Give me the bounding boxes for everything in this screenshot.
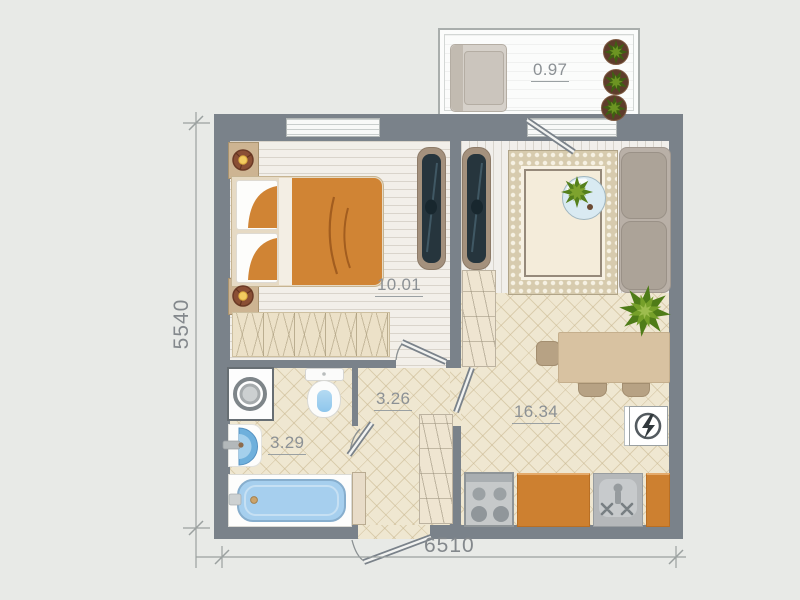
dining-chair-bottom-2 (622, 383, 650, 397)
floor-plan-canvas: 0.97 10.01 3.26 3.29 16.34 6510 5540 (0, 0, 800, 600)
wall-right (669, 114, 683, 539)
bedroom-wardrobe-mirror (422, 154, 441, 263)
dining-chair-bottom-1 (578, 383, 607, 397)
entrance-door-icon (352, 537, 431, 562)
hallway-area-label: 3.26 (374, 390, 412, 411)
wall-bedroom-living-divider (450, 141, 461, 366)
armchair-back (451, 45, 463, 111)
living-wardrobe-mirror (467, 154, 486, 263)
kitchen-counter-2 (646, 473, 670, 527)
bathroom-door-panel (352, 472, 366, 525)
sofa-cushion-1 (621, 152, 667, 219)
bed-sheet-fold (279, 178, 293, 285)
round-table-icon (562, 176, 606, 220)
wall-bathroom-hallway (352, 368, 358, 426)
nightstand-top (228, 142, 259, 179)
kitchen-cabinet-icon (462, 270, 496, 367)
entrance-threshold (358, 525, 430, 539)
bed-pillow-2 (236, 233, 278, 283)
bed-pillow-1 (236, 180, 278, 230)
bedroom-rug (232, 312, 390, 357)
washing-machine-icon (227, 367, 274, 421)
wall-bedroom-bottom-stub (446, 360, 461, 368)
balcony-area-label: 0.97 (531, 61, 569, 82)
balcony-armchair-icon (450, 44, 507, 112)
bathroom-area-label: 3.29 (268, 434, 306, 455)
hallway-wardrobe-icon (419, 414, 453, 524)
stove-icon (464, 472, 514, 527)
width-dimension-label: 6510 (424, 534, 475, 557)
toilet-water (317, 390, 332, 412)
bedroom-window (286, 118, 380, 137)
bedroom-area-label: 10.01 (375, 276, 423, 297)
electric-panel-icon (629, 406, 668, 446)
living-kitchen-area-label: 16.34 (512, 403, 560, 424)
sofa-cushion-2 (621, 221, 667, 290)
dining-table-icon (558, 332, 670, 383)
height-dimension-label: 5540 (170, 286, 196, 362)
balcony-door-window (527, 118, 617, 137)
stove-back-panel (466, 474, 512, 482)
kitchen-counter-1 (517, 473, 590, 527)
bathtub-inner-rim (244, 485, 339, 516)
bathroom-sink-counter (228, 424, 262, 467)
dining-chair-left (536, 341, 560, 366)
armchair-cushion (464, 51, 504, 105)
bed-blanket (292, 178, 382, 285)
wall-bottom-left (214, 525, 358, 539)
kitchen-sink-basin (599, 479, 637, 517)
